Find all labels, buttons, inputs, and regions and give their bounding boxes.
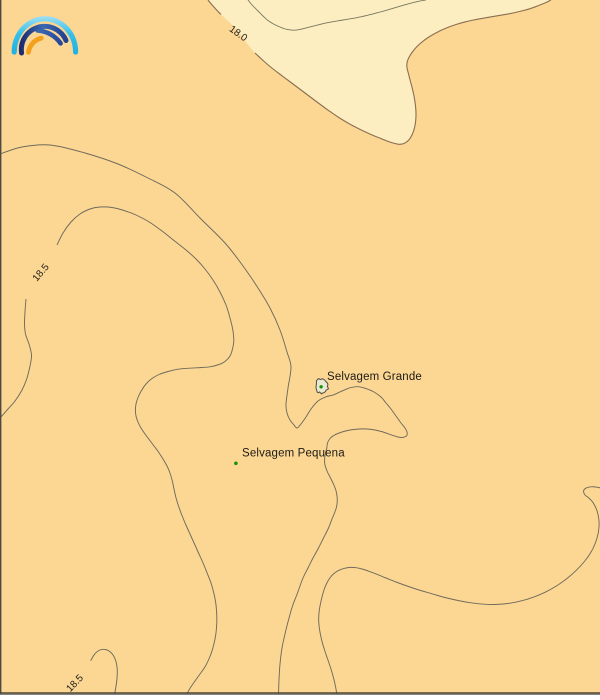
svg-text:Selvagem Grande: Selvagem Grande [327,371,422,383]
svg-text:Selvagem Pequena: Selvagem Pequena [242,448,345,460]
